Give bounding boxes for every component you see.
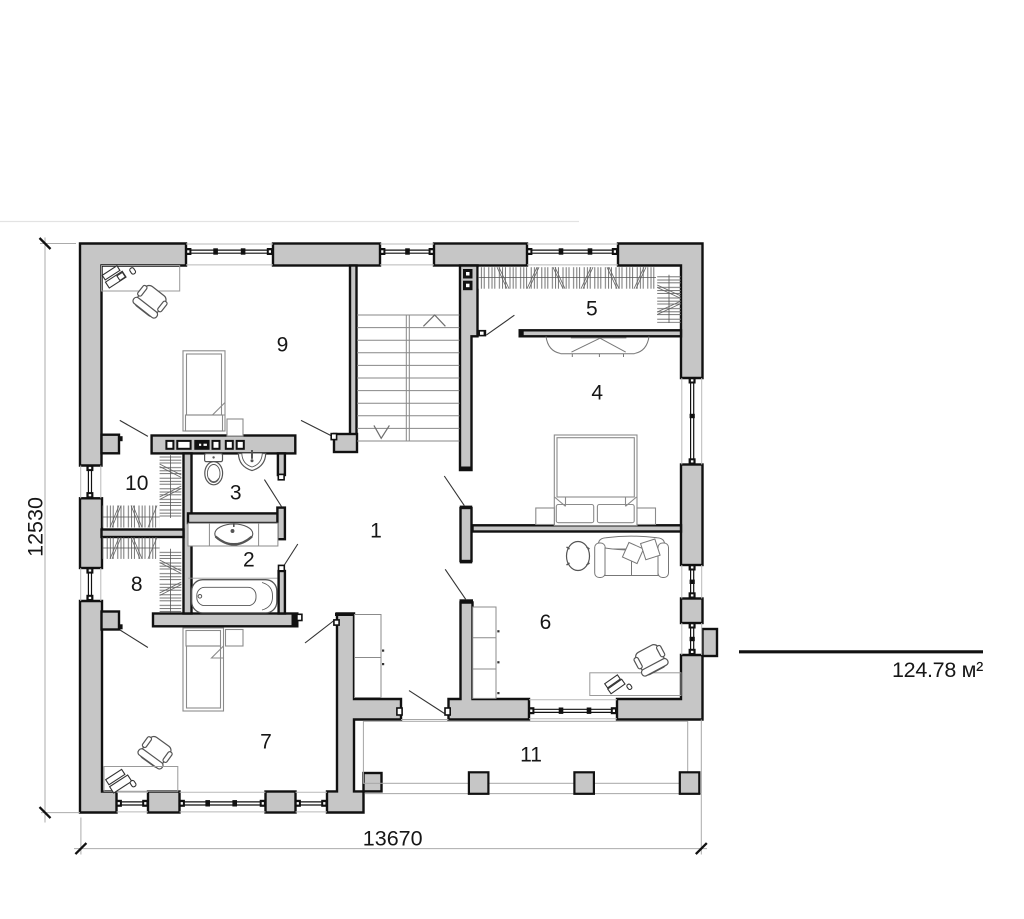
svg-text:6: 6 <box>540 611 552 634</box>
svg-text:5: 5 <box>586 298 598 321</box>
svg-text:7: 7 <box>260 731 272 754</box>
svg-text:12530: 12530 <box>24 497 48 557</box>
svg-text:11: 11 <box>520 744 542 767</box>
svg-text:13670: 13670 <box>363 827 423 851</box>
svg-text:1: 1 <box>370 519 382 542</box>
svg-text:10: 10 <box>125 472 148 495</box>
svg-text:124.78 м²: 124.78 м² <box>892 658 983 682</box>
svg-text:8: 8 <box>131 573 143 596</box>
svg-text:9: 9 <box>277 334 289 357</box>
svg-text:4: 4 <box>591 382 603 405</box>
svg-text:3: 3 <box>230 482 242 505</box>
svg-text:2: 2 <box>243 549 255 572</box>
